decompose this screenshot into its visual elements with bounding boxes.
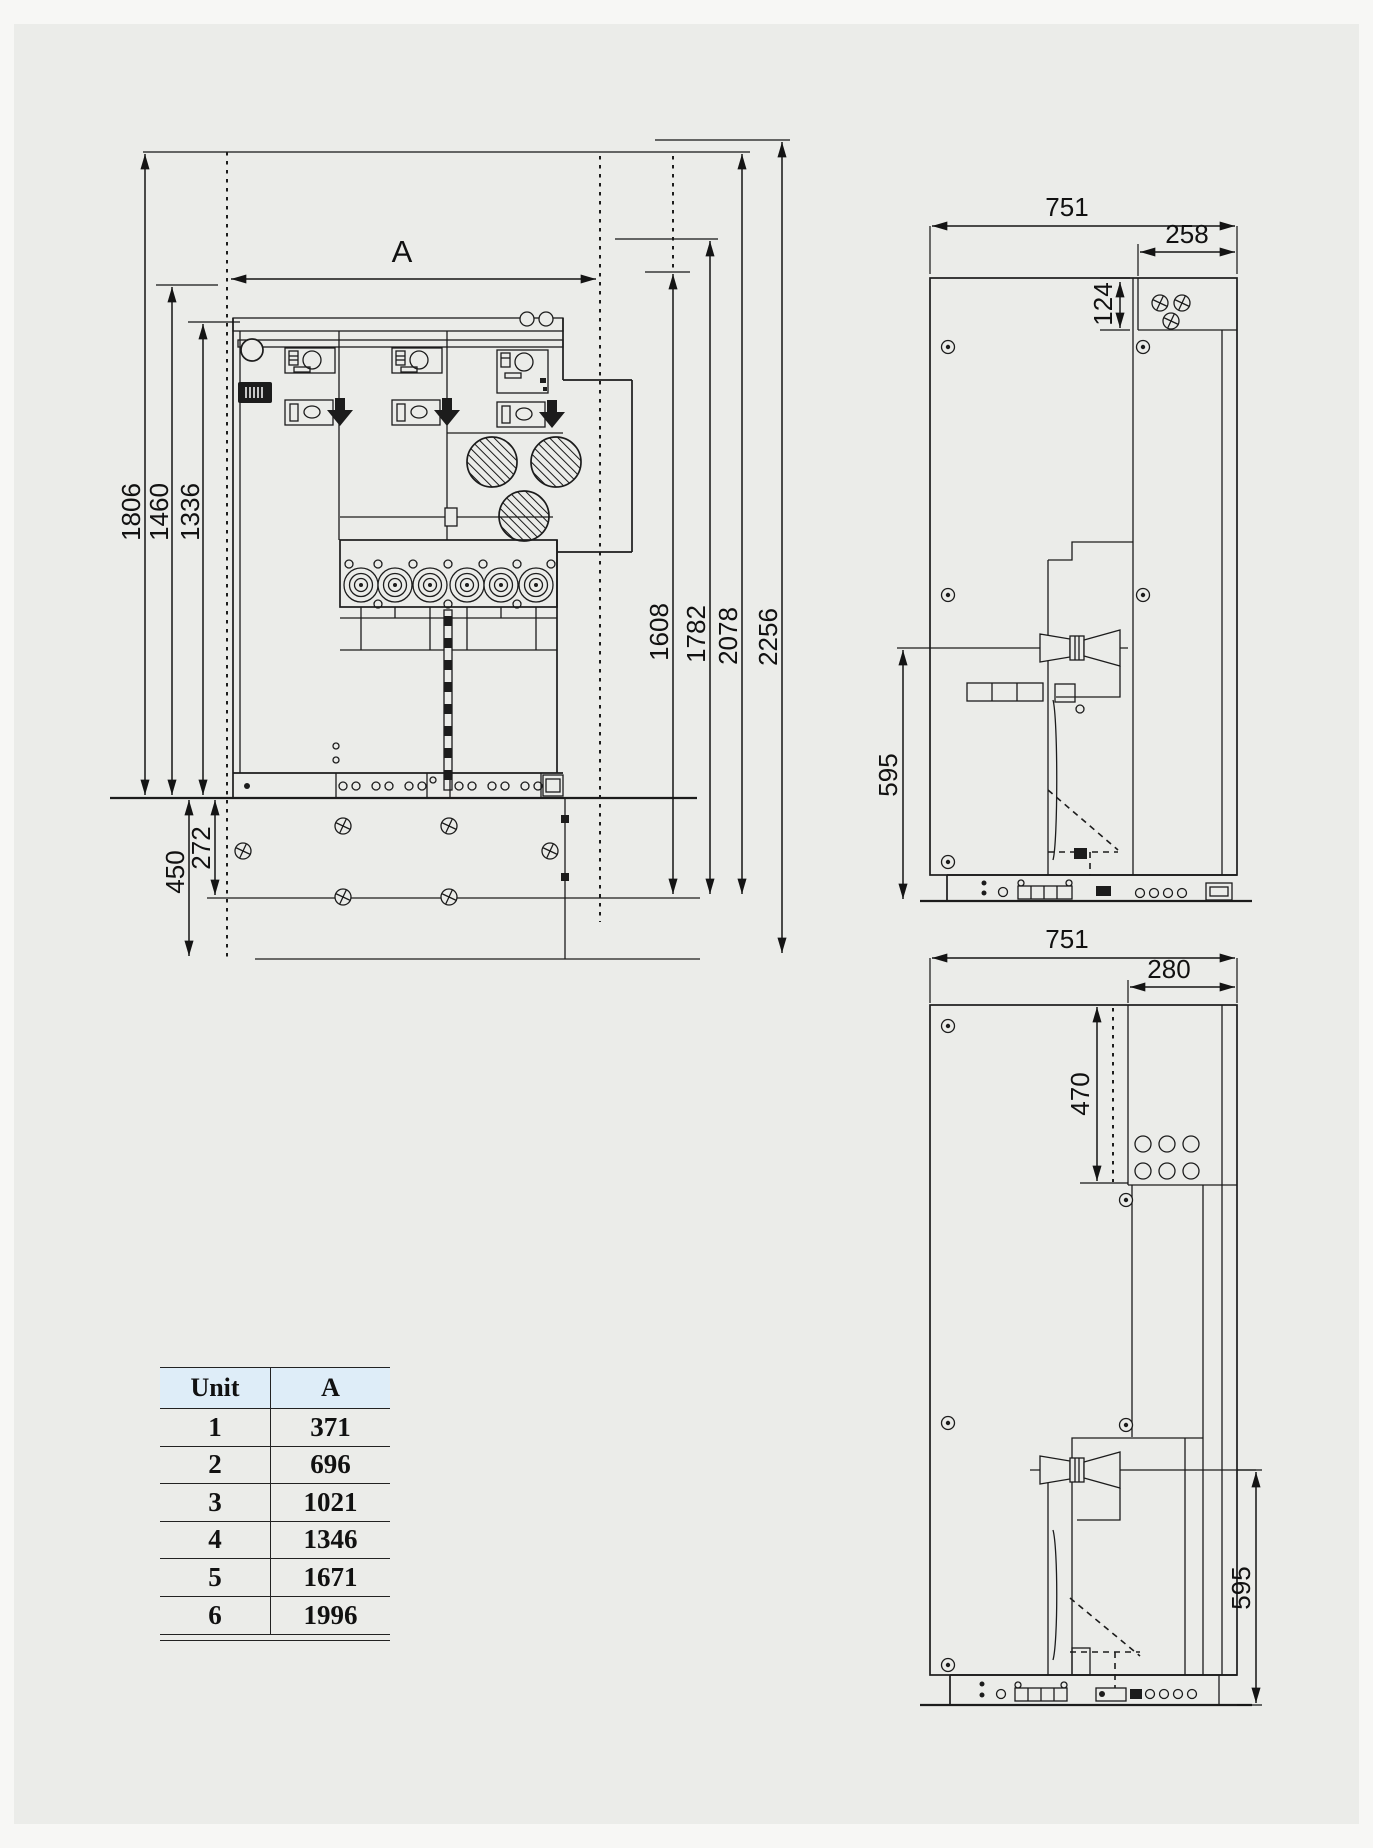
dim-front-1608: 1608 xyxy=(644,603,674,661)
unit-table-header-row: Unit A xyxy=(160,1368,390,1409)
drawing-page: A 1806 1460 1336 450 272 1608 1782 2078 … xyxy=(0,0,1373,1848)
dim-front-1782: 1782 xyxy=(681,605,711,663)
unit-table-header-unit: Unit xyxy=(160,1368,271,1408)
dim-side2-751: 751 xyxy=(1045,924,1088,954)
table-row: 5 1671 xyxy=(160,1559,390,1597)
a-value: 1346 xyxy=(271,1522,390,1559)
unit-size-table: Unit A 1 371 2 696 3 1021 4 1346 5 1671 … xyxy=(160,1367,390,1635)
panel3-mechanism-icon xyxy=(497,350,548,393)
dim-side2-280: 280 xyxy=(1147,954,1190,984)
table-row: 1 371 xyxy=(160,1409,390,1447)
unit-table-header-a: A xyxy=(271,1368,390,1408)
side-view-lower: 751 280 470 595 xyxy=(920,924,1262,1705)
unit-value: 3 xyxy=(160,1484,271,1521)
unit-value: 4 xyxy=(160,1522,271,1559)
side-view-upper: 751 258 124 595 xyxy=(873,192,1252,901)
nameplate xyxy=(238,382,272,403)
table-row: 2 696 xyxy=(160,1447,390,1485)
dim-front-1336: 1336 xyxy=(175,483,205,541)
dim-side2-595: 595 xyxy=(1226,1566,1256,1609)
table-row: 3 1021 xyxy=(160,1484,390,1522)
dim-side1-595: 595 xyxy=(873,753,903,796)
dim-front-2078: 2078 xyxy=(713,607,743,665)
front-view: A 1806 1460 1336 450 272 1608 1782 2078 … xyxy=(110,140,790,959)
a-value: 371 xyxy=(271,1409,390,1446)
a-value: 1996 xyxy=(271,1597,390,1635)
unit-value: 2 xyxy=(160,1447,271,1484)
unit-value: 5 xyxy=(160,1559,271,1596)
a-value: 1671 xyxy=(271,1559,390,1596)
dim-side1-124: 124 xyxy=(1088,282,1118,325)
unit-value: 1 xyxy=(160,1409,271,1446)
table-row: 4 1346 xyxy=(160,1522,390,1560)
table-row: 6 1996 xyxy=(160,1597,390,1635)
dim-front-1460: 1460 xyxy=(144,483,174,541)
unit-value: 6 xyxy=(160,1597,271,1635)
a-value: 696 xyxy=(271,1447,390,1484)
dim-front-1806: 1806 xyxy=(116,483,146,541)
dim-front-width-A: A xyxy=(392,234,413,269)
dim-side2-470: 470 xyxy=(1065,1072,1095,1115)
dim-front-2256: 2256 xyxy=(753,608,783,666)
dim-side1-751: 751 xyxy=(1045,192,1088,222)
dim-side1-258: 258 xyxy=(1165,219,1208,249)
a-value: 1021 xyxy=(271,1484,390,1521)
dim-front-272: 272 xyxy=(186,826,216,869)
